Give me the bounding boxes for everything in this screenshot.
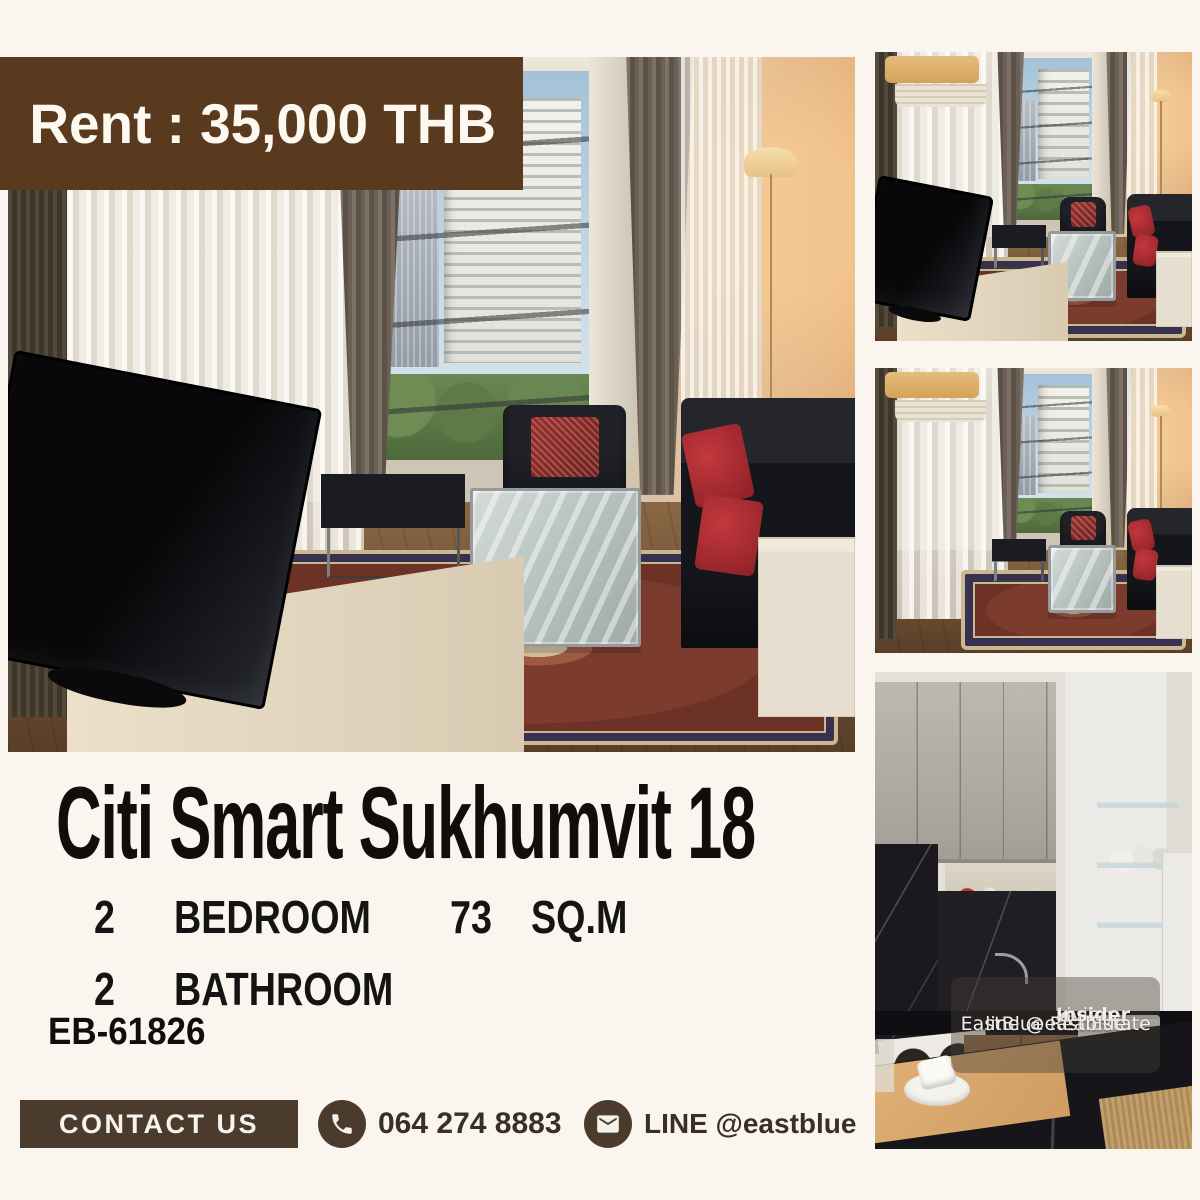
- line-id[interactable]: LINE @eastblue: [644, 1100, 856, 1148]
- watermark-line-id: line @eastblue: [985, 1013, 1126, 1037]
- window-pillar-shape: [1092, 52, 1109, 220]
- sofa-pillow-shape: [1132, 234, 1159, 268]
- drinking-glass-shape: [875, 1039, 894, 1091]
- ottoman-shape: [992, 539, 1046, 582]
- photo-living-middle-right: [875, 368, 1192, 653]
- glass-coffee-table-shape: [1048, 545, 1116, 614]
- envelope-icon: [595, 1111, 621, 1137]
- price-banner: Rent : 35,000 THB: [0, 57, 523, 190]
- area-value: 73: [450, 894, 492, 940]
- contact-us-button[interactable]: CONTACT US: [20, 1100, 298, 1148]
- ottoman-shape: [992, 225, 1046, 268]
- contact-us-label: CONTACT US: [59, 1109, 259, 1140]
- ottoman-shape: [321, 474, 465, 578]
- bedroom-label: BEDROOM: [174, 894, 371, 940]
- phone-number[interactable]: 064 274 8883: [378, 1100, 562, 1148]
- listing-code: EB-61826: [48, 1013, 205, 1051]
- window-pillar-shape: [589, 57, 635, 460]
- armchair-pillow-shape: [1071, 516, 1097, 541]
- ac-unit-shape: [895, 84, 986, 107]
- bathroom-label: BATHROOM: [174, 966, 393, 1012]
- sofa-pillow-shape: [1132, 547, 1159, 581]
- phone-icon: [329, 1111, 355, 1137]
- drawer-unit-shape: [1156, 251, 1192, 326]
- price-banner-label: Rent : 35,000 THB: [0, 91, 496, 156]
- lamp-shade-shape: [744, 147, 797, 177]
- ac-unit-shape: [895, 400, 986, 423]
- ac-cover-shape: [885, 372, 980, 398]
- flyer-canvas: Park Plaza: [0, 0, 1200, 1200]
- spec-row-bedroom: 2 BEDROOM 73 SQ.M: [0, 894, 1200, 944]
- armchair-pillow-shape: [531, 417, 600, 477]
- air-conditioner-shape: [885, 372, 993, 429]
- spec-row-bathroom: 2 BATHROOM: [0, 966, 1200, 1016]
- page-title: Citi Smart Sukhumvit 18: [56, 772, 755, 874]
- ac-cover-shape: [885, 56, 980, 83]
- drawer-unit-shape: [1156, 565, 1192, 639]
- bedroom-count: 2: [94, 894, 115, 940]
- window-pillar-shape: [1092, 368, 1109, 533]
- phone-button[interactable]: [318, 1100, 366, 1148]
- air-conditioner-shape: [885, 56, 993, 114]
- photo-living-top-right: [875, 52, 1192, 341]
- ottoman-legs-shape: [994, 561, 1044, 582]
- armchair-pillow-shape: [1071, 202, 1097, 227]
- line-contact-button[interactable]: [584, 1100, 632, 1148]
- bathroom-count: 2: [94, 966, 115, 1012]
- drawer-unit-shape: [758, 537, 855, 718]
- sofa-pillow-shape: [694, 494, 764, 577]
- upper-cabinets-shape: [875, 682, 1056, 863]
- area-unit-label: SQ.M: [531, 894, 627, 940]
